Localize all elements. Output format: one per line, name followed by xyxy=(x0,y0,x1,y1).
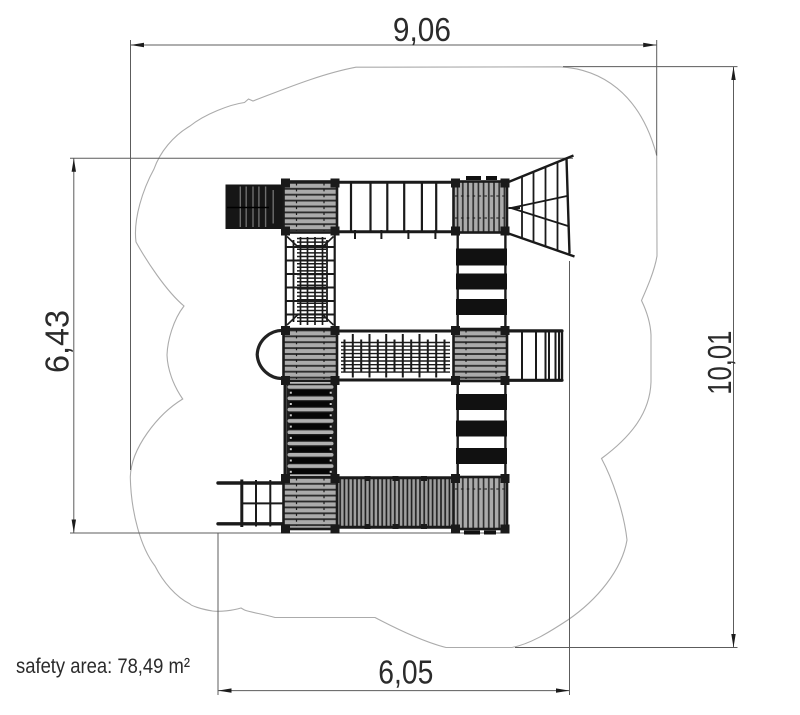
svg-text:safety area: 78,49 m²: safety area: 78,49 m² xyxy=(16,654,190,678)
svg-text:9,06: 9,06 xyxy=(393,12,451,49)
svg-text:6,43: 6,43 xyxy=(40,310,77,373)
svg-text:6,05: 6,05 xyxy=(378,655,433,692)
svg-text:10,01: 10,01 xyxy=(702,331,739,395)
